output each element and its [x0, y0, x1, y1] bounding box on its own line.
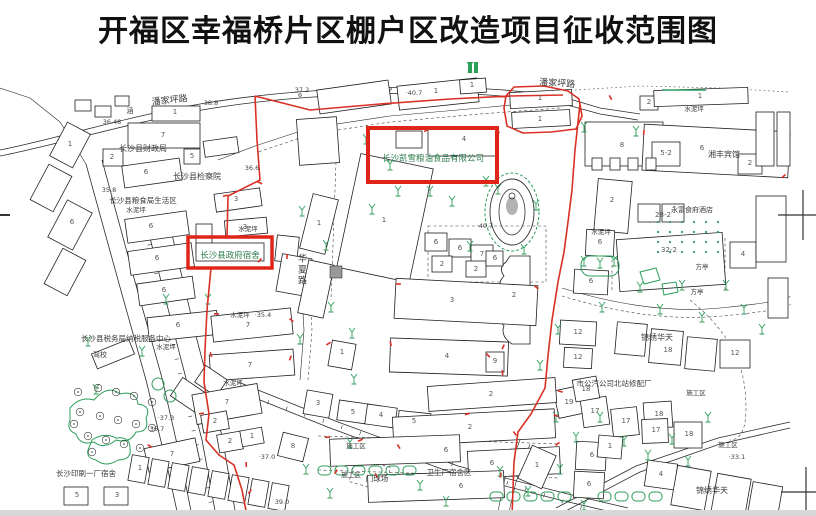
building-footprint — [75, 100, 91, 111]
tree-icon — [645, 450, 651, 460]
building-number-label: 1 — [138, 464, 142, 472]
building-number-label: 19 — [565, 398, 574, 406]
tree-icon — [657, 304, 663, 314]
in-scope-corner-mark — [325, 436, 330, 438]
building-number-label: 12 — [574, 328, 583, 336]
tree-icon — [537, 360, 543, 370]
building-number-label: 6 — [444, 446, 449, 454]
elevation-label: ·33.1 — [729, 453, 746, 461]
road-name-label: 潘家坪路 — [539, 76, 576, 90]
tree-icon — [521, 244, 527, 254]
building-number-label: 6 — [589, 277, 594, 285]
building-number-label: 3 — [234, 195, 238, 203]
building-number-label: 7 — [170, 450, 174, 458]
building-number-label: 1 — [340, 348, 344, 356]
place-label: 门球场 — [366, 473, 389, 483]
building-number-label: 17 — [591, 407, 600, 415]
building-footprint — [211, 308, 293, 342]
building-number-label: 6 — [162, 286, 167, 294]
tree-icon — [297, 334, 303, 344]
building-number-label: 6 — [587, 480, 592, 488]
tree-icon — [349, 328, 355, 338]
tree-icon — [449, 196, 455, 206]
building-number-label: 5-2 — [660, 149, 671, 157]
building-number-label: 3 — [115, 491, 119, 499]
place-label: 长沙县税务局纳税服务中心 — [81, 333, 171, 343]
building-number-label: 2 — [748, 159, 752, 167]
place-label: 方亭 — [691, 287, 705, 296]
elevation-label: 39.0 — [275, 498, 289, 506]
place-label: 水泥坪 — [238, 224, 258, 233]
place-label: 市公汽公司北站修配厂 — [577, 378, 652, 388]
building-number-label: 2 — [228, 437, 232, 445]
building-number-label: 7 — [161, 131, 165, 139]
place-label: 长沙印刷一厂宿舍 — [56, 468, 116, 478]
elevation-label: ·40.7 — [406, 89, 423, 97]
building-number-label: 7 — [480, 250, 484, 258]
building-footprint — [768, 278, 788, 318]
building-number-label: 17 — [652, 426, 661, 434]
building-footprint — [125, 211, 190, 243]
place-label: 施工区 — [346, 441, 366, 450]
map-canvas: 1721656666677331466722634291154531111821… — [0, 0, 816, 516]
road-name-label: 潘家坪路 — [151, 92, 188, 108]
building-number-label: 1 — [608, 442, 612, 450]
place-label: 水泥坪 — [230, 310, 250, 319]
map-page: { "title": "开福区幸福桥片区棚户区改造项目征收范围图", "colo… — [0, 0, 816, 516]
building-footprint — [756, 112, 774, 166]
in-scope-corner-mark — [257, 181, 262, 185]
building-footprint — [115, 96, 129, 106]
tree-icon — [139, 346, 145, 356]
place-label: 施工区 — [341, 470, 361, 479]
elevation-label: ·35.4 — [255, 311, 272, 319]
building-footprint — [685, 337, 718, 371]
building-number-label: 8 — [291, 442, 295, 450]
building-footprint — [330, 266, 342, 278]
place-label: 长沙县粮食局生活区 — [109, 195, 177, 205]
place-label: 方亭 — [696, 262, 710, 271]
building-number-label: 1 — [535, 461, 539, 469]
building-number-label: 8 — [620, 141, 624, 149]
building-number-label: 6 — [149, 222, 154, 230]
bush-icon — [649, 492, 662, 501]
building-number-label: 1 — [250, 432, 254, 440]
building-number-label: 1 — [173, 108, 177, 116]
building-number-label: 6 — [459, 482, 464, 490]
highlight-box-label-kaixue-company: 长沙凯雪粮油食品有限公司 — [382, 153, 484, 164]
building-footprint — [188, 467, 209, 496]
building-footprint — [396, 131, 422, 148]
building-footprint — [594, 179, 632, 234]
building-number-label: 4 — [379, 411, 384, 419]
building-number-label: 2 — [110, 153, 114, 161]
building-number-label: 2 — [489, 390, 493, 398]
building-number-label: 18 — [664, 346, 673, 354]
building-footprint — [756, 196, 786, 262]
elevation-label: 36.48 — [103, 118, 122, 126]
building-number-label: 5 — [351, 408, 355, 416]
building-number-label: 6 — [490, 459, 495, 467]
building-number-label: 3 — [316, 399, 320, 407]
building-number-label: 7 — [225, 398, 229, 406]
place-label: 施工区 — [718, 440, 738, 449]
building-number-label: 2 — [610, 196, 614, 204]
building-footprint — [592, 158, 602, 170]
road-name-label: 华夏路 — [296, 252, 307, 286]
tree-icon — [597, 258, 603, 268]
building-number-label: 4 — [462, 135, 467, 143]
place-label: 锦绣华天 — [696, 485, 728, 495]
park-outline — [88, 435, 131, 464]
place-label: 水泥坪 — [591, 227, 611, 236]
building-number-label: 32-2 — [661, 246, 677, 254]
building-footprint — [330, 435, 461, 467]
bush-icon — [615, 492, 628, 501]
building-number-label: 5 — [75, 491, 79, 499]
building-footprint — [95, 106, 111, 117]
building-number-label: 6 — [700, 144, 705, 152]
tree-icon — [723, 280, 729, 290]
building-number-label: 6 — [176, 321, 181, 329]
registration-cross-icon — [781, 467, 816, 516]
building-footprint — [646, 158, 656, 170]
elevation-label: 36.7 — [150, 425, 164, 433]
building-number-label: 6 — [493, 254, 498, 262]
tree-icon — [351, 374, 357, 384]
building-number-label: 1 — [317, 219, 321, 227]
fountain — [490, 179, 534, 245]
in-scope-corner-mark — [609, 95, 613, 100]
building-number-label: 18 — [655, 410, 664, 418]
tree-icon — [685, 456, 691, 466]
tree-icon — [573, 432, 579, 442]
building-number-label: 6 — [155, 254, 160, 262]
bottom-strip — [0, 510, 816, 516]
building-number-label: 2 — [474, 265, 478, 273]
building-number-label: 1 — [68, 140, 72, 148]
tree-icon — [328, 302, 334, 312]
tree-icon — [705, 412, 711, 422]
building-number-label: 4 — [659, 470, 664, 478]
building-number-label: 2 — [647, 98, 651, 106]
building-number-label: 9 — [493, 357, 497, 365]
building-number-label: 7 — [246, 321, 250, 329]
tree-icon — [299, 206, 305, 216]
tree-icon — [327, 488, 333, 498]
tree-icon — [599, 302, 605, 312]
building-number-label: 1 — [698, 92, 702, 100]
building-number-label: 6 — [70, 218, 75, 226]
place-label: 湘丰宾馆 — [708, 149, 740, 159]
building-number-label: 1 — [538, 94, 542, 102]
building-number-label: 1 — [538, 115, 542, 123]
building-footprint — [248, 479, 269, 508]
tree-icon — [303, 464, 309, 474]
building-number-label: 17 — [622, 417, 631, 425]
elevation-label: 35.8 — [102, 186, 116, 194]
place-label: 水泥坪 — [156, 342, 176, 351]
building-footprint — [296, 117, 339, 166]
building-number-label: 6 — [458, 244, 463, 252]
highlight-box-label-county-gov-dorm: 长沙县政府宿舍 — [200, 250, 260, 261]
building-number-label: 2 — [468, 423, 472, 431]
place-label: 涵 — [127, 106, 134, 115]
building-number-label: 2 — [213, 417, 217, 425]
place-label: 驾校 — [93, 350, 107, 359]
building-number-label: 5 — [412, 417, 416, 425]
in-scope-corner-mark — [214, 313, 219, 315]
in-scope-corner-mark — [245, 462, 247, 467]
tree-icon — [93, 384, 99, 394]
building-footprint — [628, 158, 638, 170]
place-label: 锦绣华天 — [641, 332, 673, 342]
building-number-label: 18 — [685, 430, 694, 438]
building-number-label: 6 — [590, 451, 595, 459]
building-footprint — [44, 248, 86, 296]
place-label: 水泥坪 — [223, 378, 243, 387]
green-pillar-icon — [474, 62, 478, 73]
place-label: 长沙县检察院 — [173, 171, 221, 181]
building-number-label: 1 — [470, 81, 474, 89]
building-number-label: 7 — [248, 361, 252, 369]
building-number-label: 4 — [445, 352, 450, 360]
building-footprint — [208, 471, 229, 500]
building-number-label: 6 — [598, 238, 603, 246]
elevation-label: 37.2 — [295, 86, 309, 94]
building-footprint — [128, 243, 195, 276]
building-number-label: 3 — [450, 296, 454, 304]
building-number-label: 1 — [434, 87, 438, 95]
place-label: 水泥坪 — [684, 104, 704, 113]
elevation-label: 36.6 — [245, 164, 259, 172]
bush-icon — [632, 492, 645, 501]
building-footprint — [777, 112, 790, 166]
elevation-label: 38.8 — [204, 99, 218, 107]
place-label: 施工区 — [686, 388, 706, 397]
place-label: 卫生厂宿舍区 — [427, 467, 472, 477]
building-number-label: 12 — [574, 353, 583, 361]
elevation-label: ·40.7 — [477, 222, 494, 230]
building-number-label: 12 — [731, 349, 740, 357]
building-number-label: 2 — [440, 260, 444, 268]
elevation-label: ·37.0 — [259, 453, 276, 461]
place-label: 永富食府酒店 — [671, 205, 713, 214]
building-footprint — [268, 483, 289, 512]
building-number-label: 6 — [144, 168, 149, 176]
building-number-label: 6 — [434, 238, 439, 246]
building-number-label: 4 — [741, 250, 746, 258]
building-footprint — [610, 158, 620, 170]
in-scope-corner-mark — [326, 342, 331, 346]
building-number-label: 2 — [512, 291, 516, 299]
place-label: 长沙县财政局 — [119, 143, 167, 153]
building-number-label: 1 — [382, 216, 386, 224]
tree-icon — [759, 324, 765, 334]
building-number-label: 5 — [190, 152, 194, 160]
place-label: 水泥坪 — [126, 205, 146, 214]
building-number-label: 28-2 — [655, 211, 671, 219]
building-footprint — [394, 278, 538, 325]
elevation-label: ·37.3 — [158, 414, 175, 422]
